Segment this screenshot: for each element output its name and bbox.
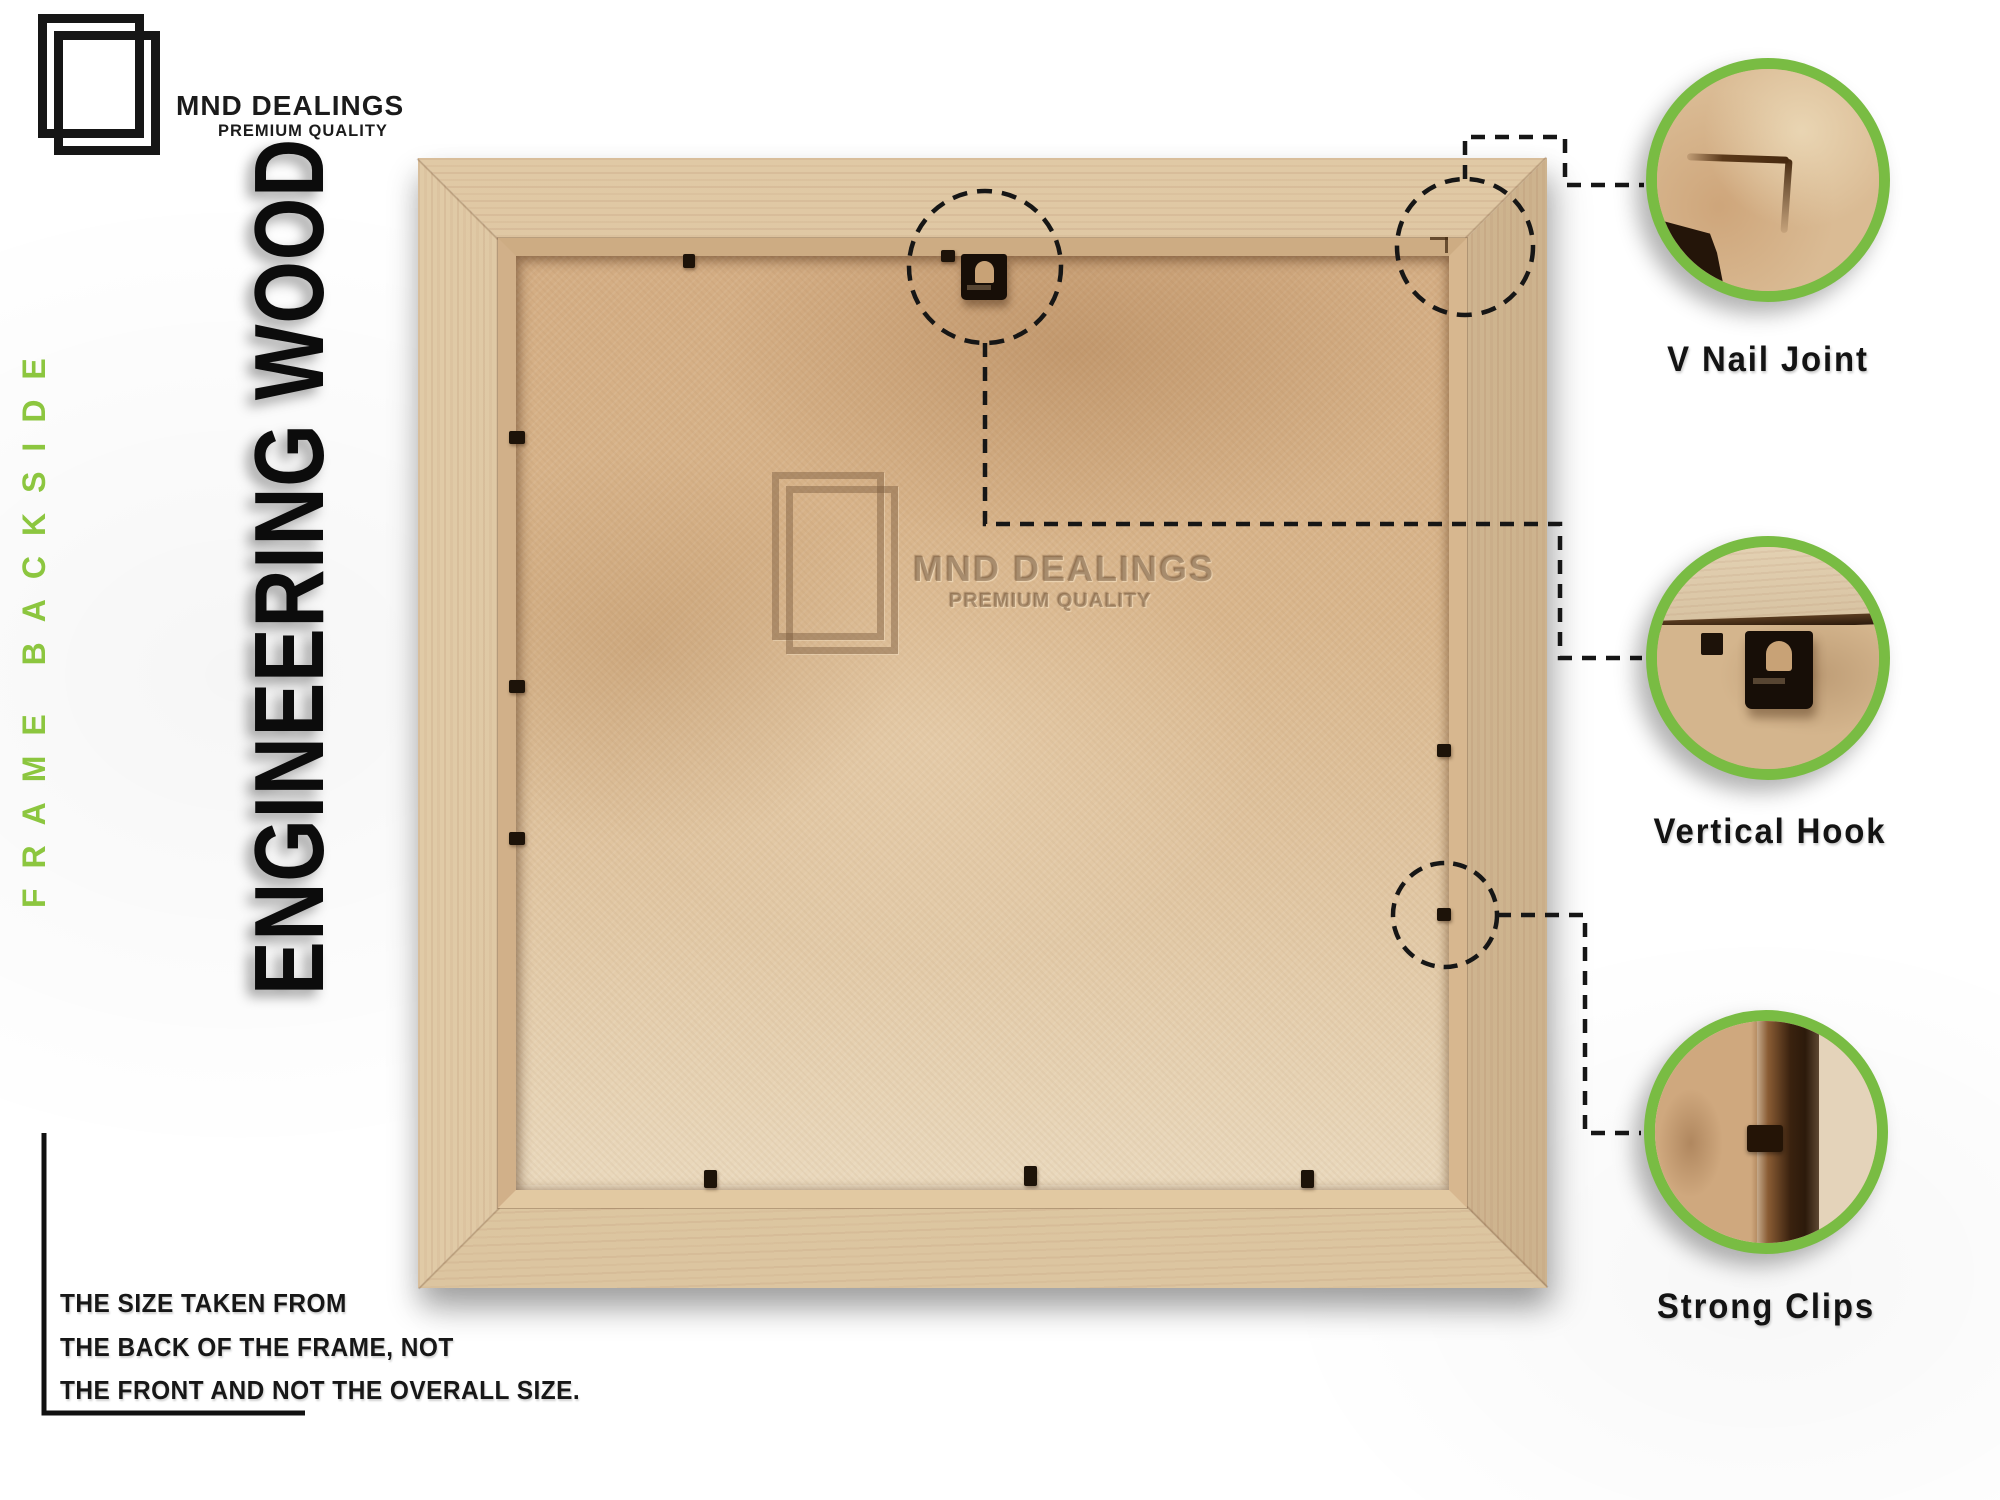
- photo-frame-back: MND DEALINGS PREMIUM QUALITY: [418, 158, 1547, 1288]
- clips-photo-mdf-band: [1655, 1021, 1757, 1243]
- backboard-clip: [704, 1170, 717, 1188]
- backboard-clip: [509, 431, 525, 444]
- hanging-hook: [961, 254, 1007, 300]
- brand-logo: [0, 0, 180, 170]
- size-note-line: THE BACK OF THE FRAME, NOT: [60, 1326, 580, 1370]
- backboard-clip: [509, 832, 525, 845]
- page-root: MND DEALINGS PREMIUM QUALITY FRAME BACKS…: [0, 0, 2000, 1500]
- clips-photo-clip: [1747, 1125, 1783, 1152]
- callout-strong-clips: [1644, 1010, 1888, 1254]
- callout-vertical-hook: [1646, 536, 1890, 780]
- material-label-engineering-wood: ENGINEERING WOOD: [233, 138, 346, 995]
- watermark-frame-outline-icon: [786, 486, 898, 654]
- v-nail-mark: [1445, 237, 1448, 253]
- callout-label-v-nail-joint: V Nail Joint: [1627, 340, 1909, 380]
- hook-photo-slot: [1753, 678, 1785, 684]
- size-note-line: THE FRONT AND NOT THE OVERALL SIZE.: [60, 1369, 580, 1413]
- callout-label-vertical-hook: Vertical Hook: [1629, 812, 1911, 852]
- brand-name: MND DEALINGS: [176, 90, 404, 122]
- mdf-backboard: [516, 256, 1449, 1190]
- callout-label-strong-clips: Strong Clips: [1625, 1287, 1907, 1327]
- size-note-line: THE SIZE TAKEN FROM: [60, 1282, 580, 1326]
- side-label-frame-backside: FRAME BACKSIDE: [16, 338, 53, 908]
- backboard-clip: [683, 254, 695, 268]
- backboard-clip: [1024, 1166, 1037, 1186]
- backboard-clip: [1301, 1170, 1314, 1188]
- hook-arch-hole: [975, 261, 994, 283]
- size-note: THE SIZE TAKEN FROM THE BACK OF THE FRAM…: [60, 1282, 580, 1413]
- watermark-tagline: PREMIUM QUALITY: [949, 590, 1152, 613]
- watermark-name: MND DEALINGS: [913, 548, 1215, 590]
- backboard-clip: [1437, 908, 1451, 921]
- hook-photo-arch-hole: [1766, 641, 1792, 671]
- hook-slot: [967, 285, 991, 290]
- backboard-clip: [1437, 744, 1451, 757]
- backboard-clip: [941, 250, 955, 262]
- hook-photo-small-clip: [1701, 633, 1723, 655]
- frame-outline-icon: [54, 31, 160, 155]
- backboard-clip: [509, 680, 525, 693]
- callout-v-nail-joint: [1646, 58, 1890, 302]
